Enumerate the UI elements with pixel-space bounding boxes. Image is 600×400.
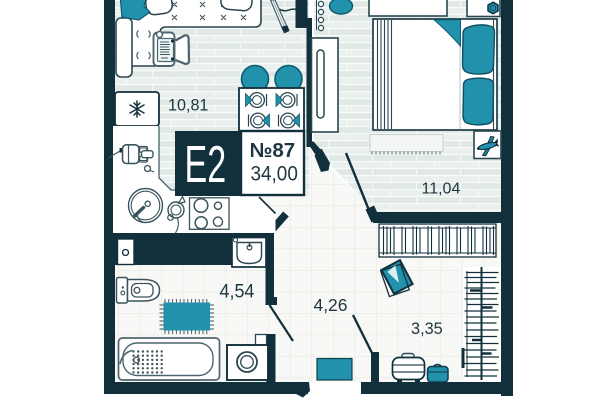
svg-text:34,00: 34,00 [251, 162, 298, 185]
svg-text:11,04: 11,04 [422, 181, 461, 198]
svg-text:№87: №87 [250, 139, 296, 162]
svg-text:4,54: 4,54 [220, 280, 255, 302]
svg-text:E2: E2 [185, 136, 227, 194]
svg-text:3,35: 3,35 [411, 319, 443, 338]
svg-text:10,81: 10,81 [168, 95, 208, 114]
svg-text:4,26: 4,26 [314, 295, 348, 315]
